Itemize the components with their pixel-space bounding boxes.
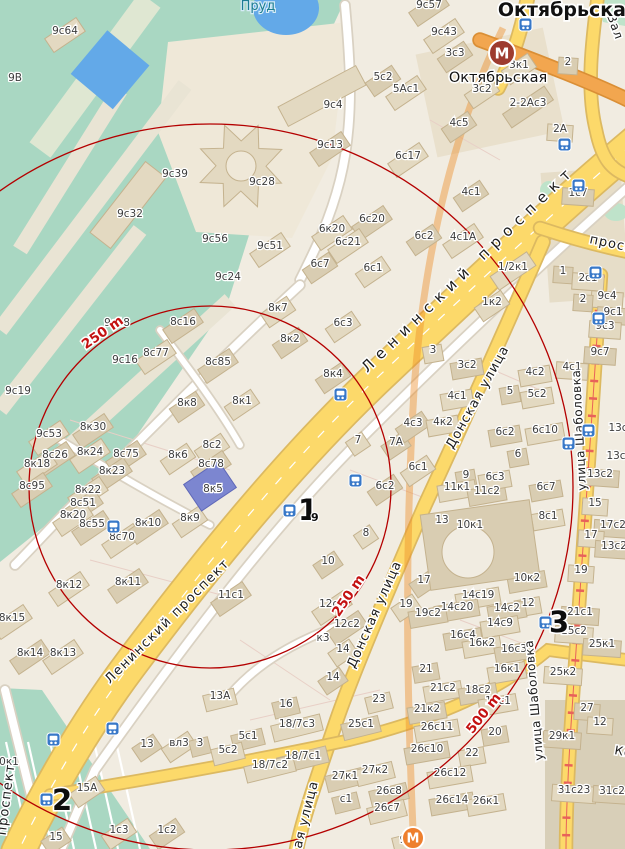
building-label: 5Ас1 [393,83,419,95]
building-label: 9 [463,469,470,481]
building-label: 26с8 [376,785,402,797]
building-label: 17 [584,529,597,541]
building-label: 18/7с2 [252,759,288,771]
building-label: 23 [372,693,385,705]
building-label: 4с3 [403,417,422,429]
building-label: 26к1 [473,795,499,807]
bus-stop-icon[interactable] [283,504,296,517]
building-label: 13с [608,422,625,434]
building-label: 25с1 [348,718,374,730]
building-label: 21к2 [414,703,440,715]
building-label: 9с28 [249,176,275,188]
building-label: 6с3 [333,317,352,329]
bus-stop-icon[interactable] [582,424,595,437]
building-label: 19 [574,564,587,576]
building-label: с1 [340,793,352,805]
building-label: 9с4 [597,290,616,302]
building-label: 12 [593,716,606,728]
bus-stop-icon[interactable] [334,388,347,401]
marker-sub-label: 9 [311,511,319,524]
building-label: 14с19 [462,589,495,601]
building-label: 26с10 [411,743,444,755]
building-label: 6с7 [310,258,329,270]
building-label: 2-2Ас3 [510,97,547,109]
building-label: 9с64 [52,25,78,37]
area-label: Октябрьская [498,0,625,21]
building-label: 4с1 [461,186,480,198]
building-label: 17 [417,574,430,586]
building-label: вл3 [169,737,189,749]
area-label: Пруд [241,0,276,14]
building-label: 31с23 [558,784,591,796]
building-label: 9с4 [323,99,342,111]
building-label: 6с10 [532,424,558,436]
building-label: 5с2 [373,71,392,83]
building-label: 19 [399,598,412,610]
building-label: 6с1 [363,262,382,274]
building-label: 21с1 [567,606,593,618]
building-label: 26с7 [374,802,400,814]
building-label: 2 [580,293,587,305]
building-label: 13 [435,514,448,526]
building-label: 11к1 [444,481,470,493]
map-viewport[interactable]: 9с649В9с45с25Ас19с579с433с33к123с22-2Ас3… [0,0,625,849]
building-label: 8с2 [202,439,221,451]
bus-stop-icon[interactable] [47,733,60,746]
building-label: 13с [606,450,625,462]
map-canvas[interactable]: 9с649В9с45с25Ас19с579с433с33к123с22-2Ас3… [0,0,625,849]
building-label: 13А [210,690,231,702]
building-label: 12с2 [334,618,360,630]
building-label: 14с9 [487,617,513,629]
building-label: 8к14 [17,647,44,659]
building-label: 18/7с1 [285,750,321,762]
building-label: 8к18 [24,458,50,470]
building-label: 4с2 [525,366,544,378]
building-label: 29к1 [549,730,575,742]
building-label: 8к7 [268,302,288,314]
building-label: 4к2 [433,416,453,428]
building-label: 4с5 [449,117,468,129]
building-label: 27к2 [362,764,388,776]
building-label: 8к4 [323,368,343,380]
building-label: 14 [336,643,350,655]
building-label: 7 [355,434,362,446]
building-label: 3 [197,737,204,749]
building-label: 6с2 [495,426,514,438]
building-label: 22 [465,747,478,759]
building-label: 8к22 [75,484,101,496]
building-label: 1/2к1 [498,261,528,273]
building-label: 4с1 [447,390,466,402]
building-label: 8с51 [70,497,96,509]
building-label: 2А [553,123,568,135]
building-label: 13с2 [601,540,625,552]
bus-stop-icon[interactable] [106,722,119,735]
building-label: 17с2 [600,519,625,531]
building-label: 9с16 [112,354,138,366]
building-label: 8к6 [168,449,188,461]
building-label: 12 [521,597,534,609]
building-label: 14с20 [441,601,474,613]
building-label: 21 [419,663,432,675]
building-label: 8с85 [205,356,231,368]
building-label: 14с2 [494,602,520,614]
building-label: 6с20 [359,213,385,225]
building-label: 6с7 [536,481,555,493]
building-label: 8 [363,527,370,539]
building-label: 8к30 [80,421,106,433]
building-label: 10к1 [457,519,483,531]
building-label: 8к2 [280,333,300,345]
bus-stop-icon[interactable] [349,474,362,487]
bus-stop-icon[interactable] [592,312,605,325]
building-label: 16к2 [469,637,495,649]
building-label: 8к23 [99,465,125,477]
building-label: 8с16 [170,316,196,328]
building-label: 5с1 [238,730,257,742]
bus-stop-icon[interactable] [519,18,532,31]
building-label: 26с12 [434,767,467,779]
building-label: 4с1А [450,231,477,243]
building-label: 1к2 [482,296,502,308]
building-label: 25к1 [589,638,615,650]
building-label: 8к24 [77,446,104,458]
metro-station-icon[interactable]: М [402,827,424,849]
building-label: 15 [49,831,62,843]
building-label: 18/7с3 [279,718,315,730]
building-label: 6с1 [408,461,427,473]
building-label: 9с51 [257,240,283,252]
building-label: 13с2 [587,468,613,480]
building-label: 9с19 [5,385,31,397]
building-label: 5с2 [527,388,546,400]
building-label: 8к12 [56,579,82,591]
building-label: 1с3 [109,824,128,836]
building-label: 1с2 [157,824,176,836]
building-label: 10к2 [514,572,540,584]
bus-stop-icon[interactable] [589,266,602,279]
building-label: 11с1 [218,589,244,601]
building-label: 8к5 [203,483,223,495]
bus-stop-icon[interactable] [572,179,585,192]
building-label: 16 [279,698,293,710]
building-label: 16к1 [494,663,520,675]
building-label: 9с43 [431,26,457,38]
building-label: 8к15 [0,612,25,624]
building-label: 27 [580,702,593,714]
map-marker-3[interactable]: 3 [549,605,569,639]
building-label: к3 [316,632,329,644]
building-label: 6с2 [414,230,433,242]
building-label: 31с2 [599,785,625,797]
building-label: 3 [430,344,437,356]
map-marker-2[interactable]: 2 [52,783,72,817]
building-label: 1 [560,265,567,277]
building-label: 8к10 [135,517,161,529]
bus-stop-icon[interactable] [107,520,120,533]
building-label: 9с39 [162,168,188,180]
building-label: 9с53 [36,428,62,440]
building-label: 20 [488,726,501,738]
building-label: 10 [321,555,334,567]
building-label: 11с2 [474,485,500,497]
building-label: 9с13 [317,139,343,151]
building-label: 7А [389,436,404,448]
building-label: 9с56 [202,233,228,245]
building-label: 8к8 [177,397,197,409]
metro-station-icon[interactable]: М [489,40,515,66]
building-label: 8к11 [115,576,141,588]
bus-stop-icon[interactable] [562,437,575,450]
building-label: 6с3 [485,471,504,483]
building-label: 9В [8,72,22,84]
building-label: 6с21 [335,236,361,248]
building-label: 8с75 [113,448,139,460]
building-label: 25к2 [550,666,576,678]
building-label: 6с17 [395,150,421,162]
svg-text:М: М [407,832,420,847]
building-label: 5 [507,385,514,397]
building-label: 2 [565,56,572,68]
building-label: 5с2 [218,744,237,756]
building-label: 19с2 [415,607,441,619]
building-label: 14 [326,671,340,683]
building-label: 3с2 [457,359,476,371]
building-label: 8с55 [79,518,105,530]
building-label: 27к1 [332,770,358,782]
building-label: 8к13 [50,647,76,659]
building-label: 9с24 [215,271,241,283]
building-label: 3с3 [445,47,464,59]
svg-text:М: М [495,44,510,62]
building-label: 6с2 [375,480,394,492]
area-label: Октябрьская [449,70,547,86]
building-label: 9с7 [590,346,609,358]
building-label: 6к20 [319,223,345,235]
building-label: 8с1 [538,510,557,522]
building-label: 21с2 [430,682,456,694]
building-label: 13 [140,738,153,750]
building-label: 15А [77,782,98,794]
bus-stop-icon[interactable] [558,138,571,151]
building-label: 6 [515,448,522,460]
building-label: 8с78 [198,458,224,470]
building-label: 8с77 [143,347,169,359]
building-label: 9с1 [603,306,622,318]
building-label: 9с32 [117,208,143,220]
building-label: 15 [588,497,601,509]
building-label: 8к9 [180,512,200,524]
building-label: 8с95 [19,480,45,492]
building-label: 9с57 [416,0,442,11]
building-label: 26с14 [436,794,469,806]
building-label: 8к1 [232,395,252,407]
building-label: 26с11 [421,721,454,733]
